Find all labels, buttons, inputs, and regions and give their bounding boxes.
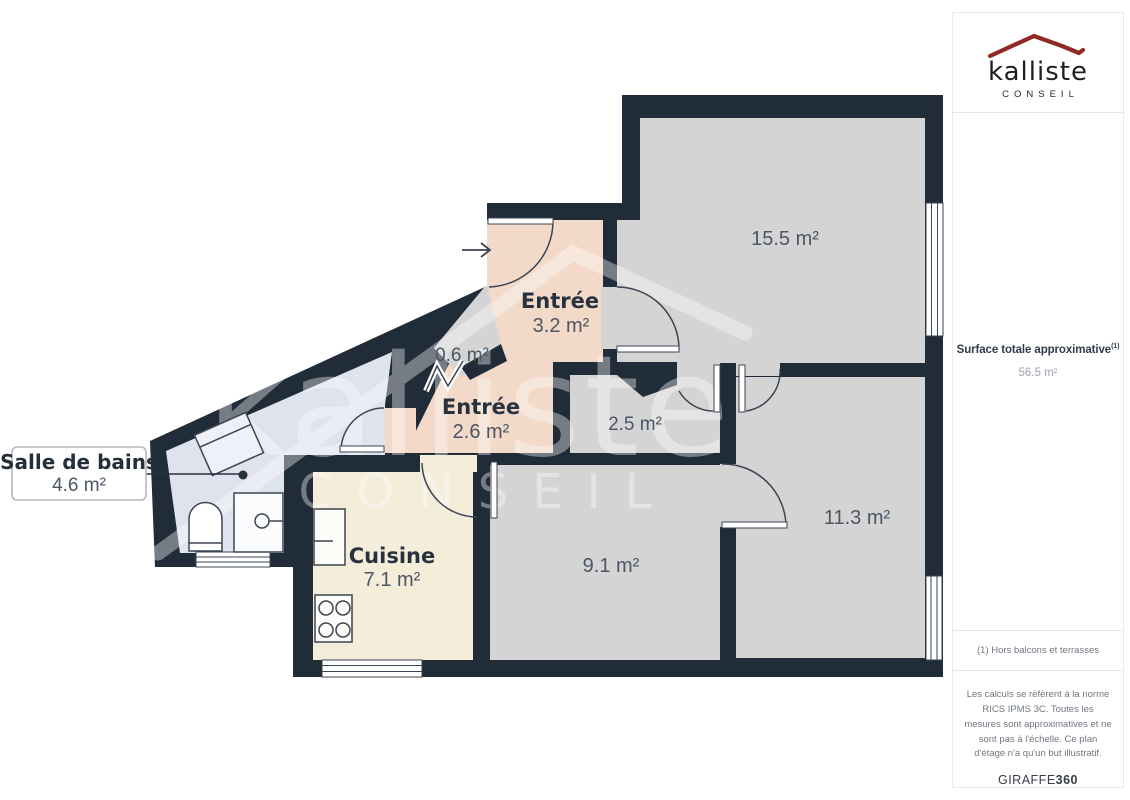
label-bathroom-area: 4.6 m²	[52, 475, 106, 496]
window-bathroom	[196, 552, 270, 567]
surface-label-sup: (1)	[1111, 343, 1119, 350]
legal-text: Les calculs se réfèrent à la norme RICS …	[964, 688, 1112, 762]
corridor-right-door-leaf	[739, 365, 745, 412]
entry-door-leaf	[488, 218, 553, 224]
label-closet-area: 0.6 m²	[435, 345, 489, 366]
label-hall1-name: Entrée	[521, 289, 599, 313]
credit: GIRAFFE360	[998, 773, 1078, 787]
corridor-left-door-leaf	[714, 365, 720, 412]
label-kitchen-area: 7.1 m²	[364, 569, 421, 591]
logo-block: kalliste CONSEIL	[953, 13, 1123, 113]
brand-tagline: CONSEIL	[1002, 89, 1079, 100]
surface-label: Surface totale approximative(1)	[957, 343, 1120, 356]
credit-brand: GIRAFFE	[998, 773, 1056, 787]
label-bedroom1-area: 9.1 m²	[583, 555, 640, 577]
toilet-icon	[189, 503, 222, 552]
kitchen-door-leaf	[491, 462, 497, 518]
surface-label-text: Surface totale approximative	[957, 344, 1111, 356]
logo-roof-icon	[982, 32, 1094, 58]
label-hall2-area: 2.6 m²	[453, 421, 510, 443]
kitchen-counter-icon	[314, 509, 345, 565]
label-hall1-area: 3.2 m²	[533, 315, 590, 337]
window-bedroom2	[926, 576, 942, 660]
watermark-subtext: CONSEIL	[299, 464, 676, 520]
label-kitchen-name: Cuisine	[349, 544, 435, 568]
label-bedroom2-area: 11.3 m²	[824, 507, 891, 529]
label-living-area: 15.5 m²	[751, 228, 819, 250]
shower-icon	[234, 493, 283, 552]
bathroom-door-leaf	[340, 446, 384, 452]
bathroom-callout-dot	[239, 471, 248, 480]
legal-block: Les calculs se réfèrent à la norme RICS …	[953, 671, 1123, 787]
stove-icon	[315, 595, 352, 642]
label-hall2-name: Entrée	[442, 395, 520, 419]
surface-block: Surface totale approximative(1) 56.5 m²	[953, 113, 1123, 631]
living-door-leaf	[617, 346, 679, 352]
surface-value: 56.5 m²	[1019, 367, 1058, 379]
page: { "branding": { "name": "kalliste", "tag…	[0, 0, 1130, 800]
window-living	[926, 203, 943, 336]
footnote-text: (1) Hors balcons et terrasses	[977, 645, 1099, 656]
label-bathroom-name: Salle de bains	[0, 450, 158, 474]
label-corridor-area: 2.5 m²	[608, 414, 662, 435]
bedroom2-door-leaf	[722, 522, 787, 528]
credit-suffix: 360	[1056, 773, 1078, 787]
window-kitchen	[322, 660, 422, 677]
brand-name: kalliste	[988, 59, 1088, 85]
footnote-block: (1) Hors balcons et terrasses	[953, 631, 1123, 671]
sidebar: kalliste CONSEIL Surface totale approxim…	[952, 12, 1124, 788]
